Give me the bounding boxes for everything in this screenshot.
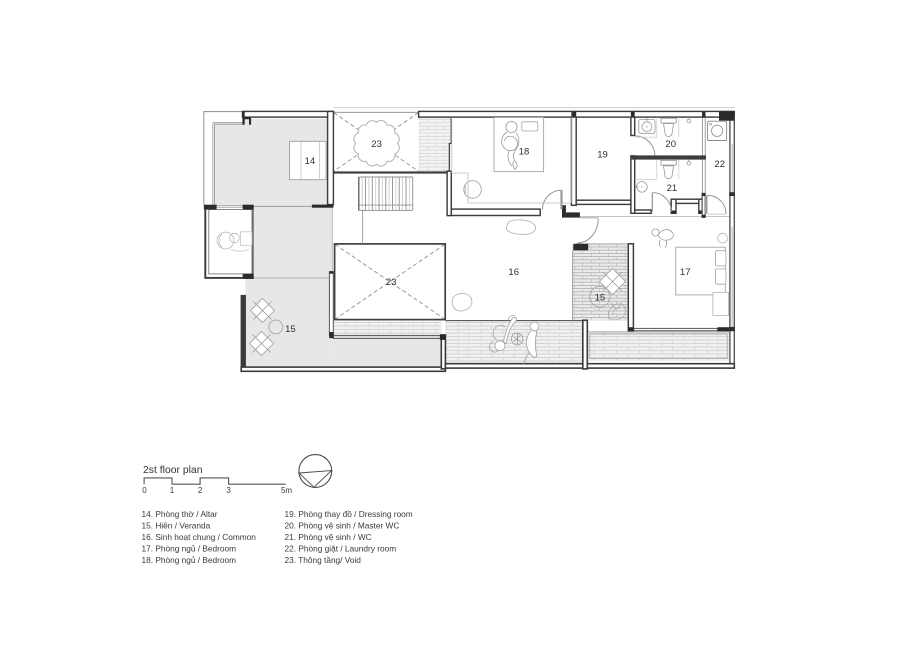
svg-text:17. Phòng ngủ / Bedroom: 17. Phòng ngủ / Bedroom [142, 544, 237, 554]
svg-text:21. Phòng vệ sinh / WC: 21. Phòng vệ sinh / WC [285, 532, 372, 542]
svg-text:1: 1 [170, 486, 175, 495]
svg-text:21: 21 [667, 183, 678, 194]
svg-text:19. Phòng thay đồ / Dressing r: 19. Phòng thay đồ / Dressing room [285, 509, 413, 519]
svg-text:23: 23 [386, 277, 397, 288]
svg-text:18. Phòng ngủ / Bedroom: 18. Phòng ngủ / Bedroom [142, 555, 237, 565]
svg-text:22. Phòng giặt / Laundry room: 22. Phòng giặt / Laundry room [285, 544, 397, 554]
svg-text:16. Sinh hoạt chung / Common: 16. Sinh hoạt chung / Common [142, 532, 257, 542]
svg-text:20: 20 [665, 139, 676, 150]
svg-text:20. Phòng vệ sinh / Master WC: 20. Phòng vệ sinh / Master WC [285, 521, 400, 531]
svg-text:15: 15 [285, 324, 296, 335]
svg-text:18: 18 [519, 147, 530, 158]
svg-text:17: 17 [680, 267, 691, 278]
svg-text:19: 19 [597, 150, 608, 161]
svg-text:22: 22 [714, 159, 725, 170]
svg-text:16: 16 [508, 267, 519, 278]
svg-text:14: 14 [305, 156, 316, 167]
svg-text:23: 23 [371, 139, 382, 150]
svg-text:0: 0 [142, 486, 147, 495]
svg-text:3: 3 [226, 486, 231, 495]
svg-text:5m: 5m [281, 486, 292, 495]
svg-text:2st floor plan: 2st floor plan [143, 465, 203, 476]
svg-text:2: 2 [198, 486, 203, 495]
svg-text:14. Phòng thờ / Altar: 14. Phòng thờ / Altar [142, 509, 218, 519]
svg-text:15. Hiên / Veranda: 15. Hiên / Veranda [142, 521, 211, 531]
svg-text:15: 15 [595, 292, 606, 303]
svg-text:23. Thông tầng/ Void: 23. Thông tầng/ Void [285, 555, 362, 565]
